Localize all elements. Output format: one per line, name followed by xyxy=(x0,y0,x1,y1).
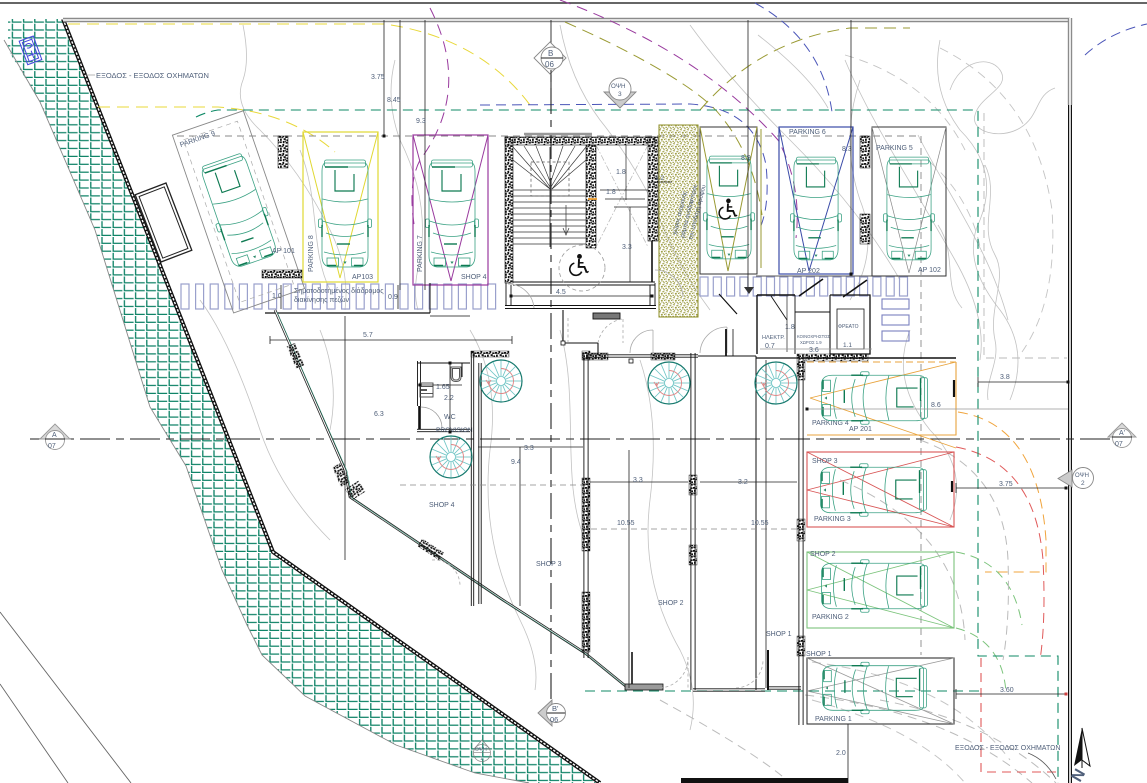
svg-text:PARKING 6: PARKING 6 xyxy=(789,129,826,136)
svg-text:3.60: 3.60 xyxy=(1000,687,1014,694)
svg-text:PARKING 8: PARKING 8 xyxy=(308,235,315,272)
svg-text:1.8: 1.8 xyxy=(616,169,626,176)
svg-text:A: A xyxy=(52,432,57,439)
svg-text:SHOP 2: SHOP 2 xyxy=(658,600,684,607)
svg-text:3.3: 3.3 xyxy=(633,477,643,484)
svg-text:AP103: AP103 xyxy=(352,274,373,281)
svg-text:PARKING 1: PARKING 1 xyxy=(815,716,852,723)
svg-text:2.0: 2.0 xyxy=(836,750,846,757)
svg-text:SHOP 3: SHOP 3 xyxy=(536,561,562,568)
svg-text:Σηματοδοτημένος διάδρομος: Σηματοδοτημένος διάδρομος xyxy=(294,287,384,295)
svg-text:3.8: 3.8 xyxy=(1000,374,1010,381)
svg-text:PROVISION: PROVISION xyxy=(436,427,473,434)
svg-text:9.4: 9.4 xyxy=(511,459,521,466)
svg-text:AP 101: AP 101 xyxy=(272,248,295,255)
svg-text:8.3: 8.3 xyxy=(842,146,852,153)
svg-text:SHOP 4: SHOP 4 xyxy=(429,502,455,509)
svg-text:διακίνησης πεζών: διακίνησης πεζών xyxy=(294,296,350,304)
svg-text:3.75: 3.75 xyxy=(371,74,385,81)
svg-text:8.6: 8.6 xyxy=(931,402,941,409)
svg-text:1.1: 1.1 xyxy=(843,342,852,349)
svg-text:SHOP 1: SHOP 1 xyxy=(766,631,792,638)
svg-text:A': A' xyxy=(1119,430,1125,437)
svg-text:07: 07 xyxy=(1115,441,1123,448)
svg-text:3.75: 3.75 xyxy=(999,481,1013,488)
svg-text:PARKING 2: PARKING 2 xyxy=(812,614,849,621)
svg-text:ΟΨΗ: ΟΨΗ xyxy=(611,83,625,90)
svg-text:07: 07 xyxy=(48,443,56,450)
svg-text:ΟΨΗ: ΟΨΗ xyxy=(475,747,487,753)
svg-text:ΚΟΙΝΟΧΡΗΣΤΟΣ: ΚΟΙΝΟΧΡΗΣΤΟΣ xyxy=(797,334,830,339)
svg-text:AP 201: AP 201 xyxy=(849,426,872,433)
svg-text:3.3: 3.3 xyxy=(524,445,534,452)
svg-text:AP 102: AP 102 xyxy=(918,267,941,274)
svg-text:2.2: 2.2 xyxy=(444,395,454,402)
svg-text:1.8: 1.8 xyxy=(785,324,795,331)
svg-text:ΕΞΟΔΟΣ - ΕΞΟΔΟΣ ΟΧΗΜΑΤΩΝ: ΕΞΟΔΟΣ - ΕΞΟΔΟΣ ΟΧΗΜΑΤΩΝ xyxy=(96,71,209,80)
svg-text:ΕΞΟΔΟΣ - ΕΞΟΔΟΣ ΟΧΗΜΑΤΩΝ: ΕΞΟΔΟΣ - ΕΞΟΔΟΣ ΟΧΗΜΑΤΩΝ xyxy=(955,745,1060,752)
svg-text:1.2: 1.2 xyxy=(655,175,664,182)
svg-text:3: 3 xyxy=(618,91,622,98)
svg-text:B: B xyxy=(548,49,553,58)
svg-text:ΦΡΕΑΤΟ: ΦΡΕΑΤΟ xyxy=(838,324,859,330)
svg-text:ΟΨΗ: ΟΨΗ xyxy=(1075,473,1089,479)
svg-text:SHOP 1: SHOP 1 xyxy=(806,651,832,658)
svg-text:2: 2 xyxy=(1081,480,1085,487)
svg-text:9.3: 9.3 xyxy=(416,118,426,125)
svg-text:SHOP 2: SHOP 2 xyxy=(810,551,836,558)
svg-text:3.2: 3.2 xyxy=(738,479,748,486)
svg-text:AP 202: AP 202 xyxy=(797,268,820,275)
svg-text:3.3: 3.3 xyxy=(622,244,632,251)
svg-text:B': B' xyxy=(552,704,559,713)
svg-text:PARKING 7: PARKING 7 xyxy=(417,235,424,272)
svg-text:4.5: 4.5 xyxy=(556,289,566,296)
svg-text:8.45: 8.45 xyxy=(387,97,401,104)
svg-text:ΗΛΕΚΤΡ.: ΗΛΕΚΤΡ. xyxy=(762,335,785,341)
svg-text:1.8: 1.8 xyxy=(606,189,616,196)
svg-text:6.3: 6.3 xyxy=(374,411,384,418)
svg-text:06: 06 xyxy=(550,715,558,724)
svg-text:10.55: 10.55 xyxy=(751,520,769,527)
svg-text:3.6: 3.6 xyxy=(809,347,819,354)
svg-text:ΧΩΡΟΣ 1.9: ΧΩΡΟΣ 1.9 xyxy=(800,340,822,345)
svg-text:8.9: 8.9 xyxy=(741,155,751,162)
svg-text:SHOP 4: SHOP 4 xyxy=(461,274,487,281)
svg-text:5.7: 5.7 xyxy=(363,332,373,339)
svg-text:SHOP 3: SHOP 3 xyxy=(812,458,838,465)
svg-text:06: 06 xyxy=(545,60,554,69)
svg-text:10.55: 10.55 xyxy=(617,520,635,527)
svg-text:PARKING 3: PARKING 3 xyxy=(814,516,851,523)
svg-text:PARKING 5: PARKING 5 xyxy=(876,145,913,152)
svg-text:5: 5 xyxy=(690,198,694,205)
svg-text:0.9: 0.9 xyxy=(388,294,398,301)
svg-text:1: 1 xyxy=(480,756,483,762)
